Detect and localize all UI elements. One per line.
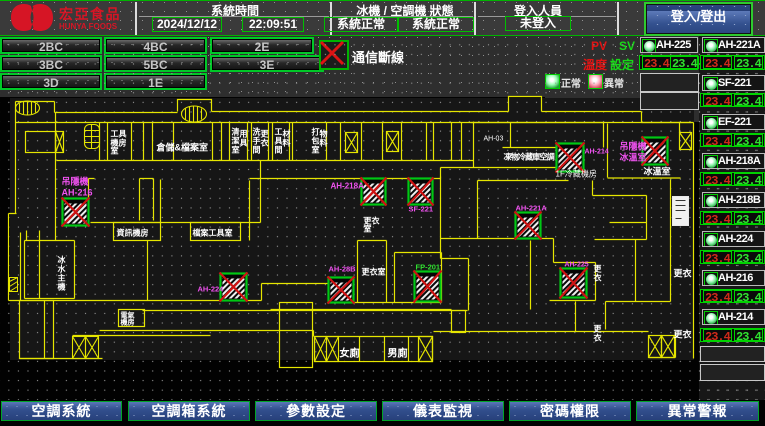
svg-text:吊隱機: 吊隱機 — [620, 141, 647, 152]
svg-text:冰溫室: 冰溫室 — [644, 166, 671, 177]
svg-text:1F冷藏機房: 1F冷藏機房 — [556, 169, 597, 179]
svg-text:洗手間更衣: 洗手間更衣 — [253, 127, 270, 155]
svg-text:SF-221: SF-221 — [409, 205, 434, 214]
svg-text:更衣: 更衣 — [594, 264, 603, 283]
svg-text:冰水主機: 冰水主機 — [57, 255, 67, 292]
svg-text:電氣: 電氣 — [121, 311, 135, 320]
svg-text:資訊機房: 資訊機房 — [117, 228, 149, 238]
svg-text:機房: 機房 — [121, 318, 135, 327]
svg-text:男廁: 男廁 — [388, 347, 408, 360]
svg-text:AH-224: AH-224 — [198, 285, 225, 294]
svg-text:AH-216: AH-216 — [62, 188, 93, 198]
svg-text:打包室物料: 打包室物料 — [311, 127, 328, 155]
svg-text:冰溫室: 冰溫室 — [620, 152, 647, 163]
svg-text:AH-218A: AH-218A — [331, 182, 365, 191]
svg-text:倉儲&檔案室: 倉儲&檔案室 — [156, 142, 209, 153]
svg-text:女廁: 女廁 — [340, 347, 360, 360]
svg-text:AH-28B: AH-28B — [329, 265, 357, 274]
svg-text:AH-221A: AH-221A — [516, 204, 548, 213]
svg-text:凍物冷藏庫空調: 凍物冷藏庫空調 — [504, 152, 555, 162]
svg-text:工具間材料: 工具間材料 — [275, 128, 291, 155]
svg-text:室: 室 — [364, 224, 372, 234]
svg-text:更衣: 更衣 — [674, 329, 692, 340]
svg-text:吊隱機: 吊隱機 — [62, 176, 89, 187]
svg-text:更衣: 更衣 — [594, 324, 603, 343]
svg-text:室: 室 — [111, 146, 119, 156]
svg-text:AH-03: AH-03 — [484, 136, 504, 143]
svg-text:更衣: 更衣 — [674, 268, 692, 279]
svg-text:工具: 工具 — [111, 130, 127, 139]
svg-text:檔案工具室: 檔案工具室 — [193, 228, 233, 238]
svg-text:AH-225: AH-225 — [565, 262, 589, 269]
svg-text:AH-214: AH-214 — [585, 149, 609, 156]
svg-text:清潔室用具: 清潔室用具 — [232, 127, 248, 155]
svg-text:FP-201: FP-201 — [416, 263, 441, 272]
svg-text:更衣室: 更衣室 — [362, 267, 386, 277]
